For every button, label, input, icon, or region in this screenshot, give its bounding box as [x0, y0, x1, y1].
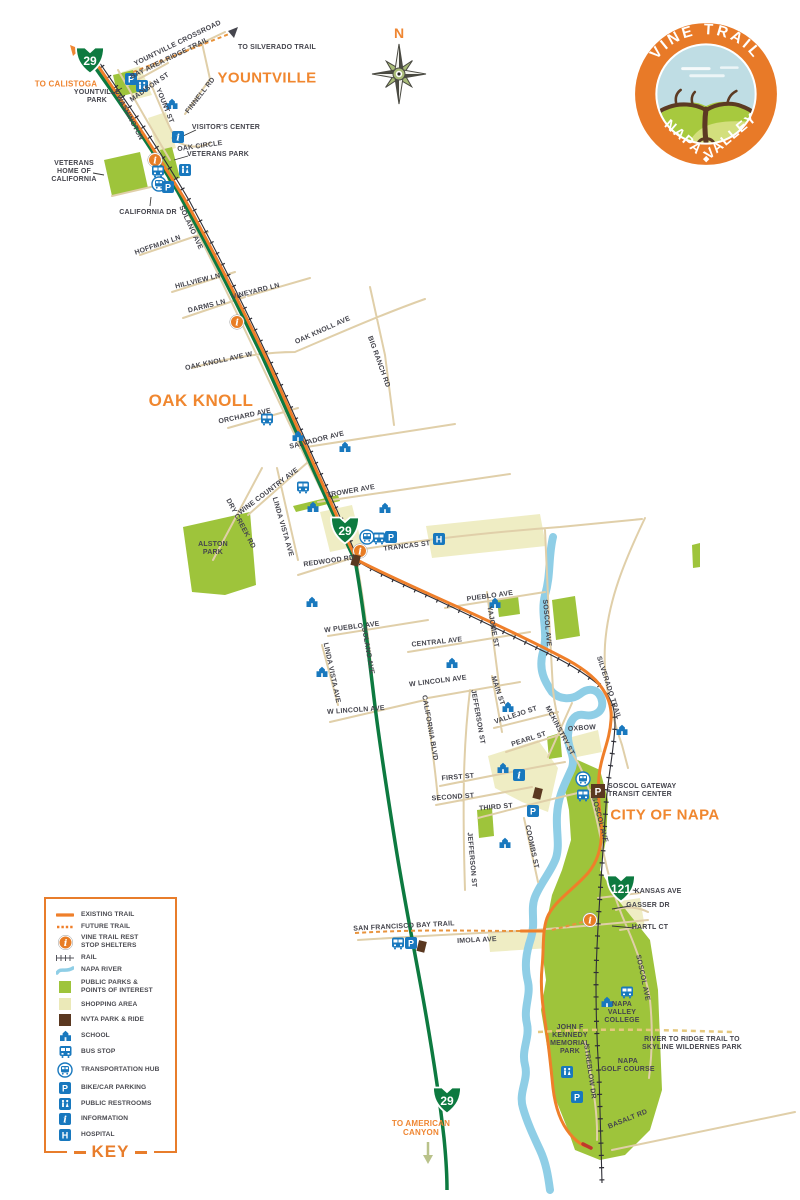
key-item-parking: PBIKE/CAR PARKING — [55, 1082, 169, 1094]
compass-rose: N — [356, 22, 442, 114]
key-item-label: TRANSPORTATION HUB — [81, 1066, 159, 1074]
key-item-label: PUBLIC RESTROOMS — [81, 1100, 151, 1108]
key-dash-left — [74, 1151, 86, 1154]
restroom-swatch — [55, 1098, 75, 1110]
key-item-rail: RAIL — [55, 954, 169, 962]
key-item-label: PUBLIC PARKS & POINTS OF INTEREST — [81, 979, 153, 995]
parks — [104, 70, 700, 1160]
key-item-label: SHOPPING AREA — [81, 1001, 137, 1009]
reststop-swatch: i — [55, 935, 75, 950]
key-item-label: NVTA PARK & RIDE — [81, 1016, 144, 1024]
key-item-sq-nvta: NVTA PARK & RIDE — [55, 1014, 169, 1026]
key-item-label: RAIL — [81, 954, 97, 962]
key-item-bus: BUS STOP — [55, 1045, 169, 1058]
key-item-label: HOSPITAL — [81, 1131, 115, 1139]
key-item-sq-shop: SHOPPING AREA — [55, 998, 169, 1010]
key-item-river: NAPA RIVER — [55, 965, 169, 975]
sq-nvta-swatch — [55, 1014, 75, 1026]
key-item-label: FUTURE TRAIL — [81, 923, 130, 931]
svg-text:i: i — [63, 938, 67, 949]
bus-swatch — [55, 1045, 75, 1058]
key-item-line-solid: EXISTING TRAIL — [55, 911, 169, 919]
sq-shop-swatch — [55, 998, 75, 1010]
key-item-hospital: HHOSPITAL — [55, 1129, 169, 1141]
key-item-hub: TRANSPORTATION HUB — [55, 1062, 169, 1078]
key-item-label: EXISTING TRAIL — [81, 911, 134, 919]
key-item-label: SCHOOL — [81, 1032, 110, 1040]
key-dash-right — [135, 1151, 147, 1154]
info-swatch: i — [55, 1113, 75, 1125]
vine-trail-map: iiiiPPPPPPPiiH292929121 YOUNTVILLE CROSS… — [0, 0, 800, 1200]
key-items: EXISTING TRAILFUTURE TRAILiVINE TRAIL RE… — [55, 911, 169, 1141]
sq-park-swatch — [55, 981, 75, 993]
line-solid-swatch — [55, 912, 75, 918]
rail-swatch — [55, 954, 75, 962]
line-dashed-swatch — [55, 924, 75, 930]
key-title: KEY — [67, 1142, 155, 1162]
river-swatch — [55, 965, 75, 975]
map-key: EXISTING TRAILFUTURE TRAILiVINE TRAIL RE… — [44, 897, 177, 1153]
key-item-label: VINE TRAIL REST STOP SHELTERS — [81, 934, 138, 950]
hospital-swatch: H — [55, 1129, 75, 1141]
key-title-text: KEY — [92, 1142, 130, 1162]
key-item-line-dashed: FUTURE TRAIL — [55, 923, 169, 931]
key-item-label: NAPA RIVER — [81, 966, 122, 974]
key-item-reststop: iVINE TRAIL REST STOP SHELTERS — [55, 934, 169, 950]
compass-north-label: N — [394, 25, 404, 41]
svg-text:i: i — [63, 1115, 67, 1126]
vine-trail-logo: VINE TRAIL NAPA VALLEY — [630, 18, 782, 170]
hub-swatch — [55, 1062, 75, 1078]
key-item-label: BIKE/CAR PARKING — [81, 1084, 146, 1092]
key-item-school: SCHOOL — [55, 1030, 169, 1042]
key-item-info: iINFORMATION — [55, 1113, 169, 1125]
key-item-restroom: PUBLIC RESTROOMS — [55, 1098, 169, 1110]
key-item-label: INFORMATION — [81, 1115, 128, 1123]
key-item-sq-park: PUBLIC PARKS & POINTS OF INTEREST — [55, 979, 169, 995]
school-swatch — [55, 1030, 75, 1042]
key-item-label: BUS STOP — [81, 1048, 115, 1056]
svg-text:H: H — [62, 1130, 69, 1140]
shopping-areas — [122, 66, 645, 952]
svg-text:P: P — [62, 1083, 68, 1093]
parking-swatch: P — [55, 1082, 75, 1094]
